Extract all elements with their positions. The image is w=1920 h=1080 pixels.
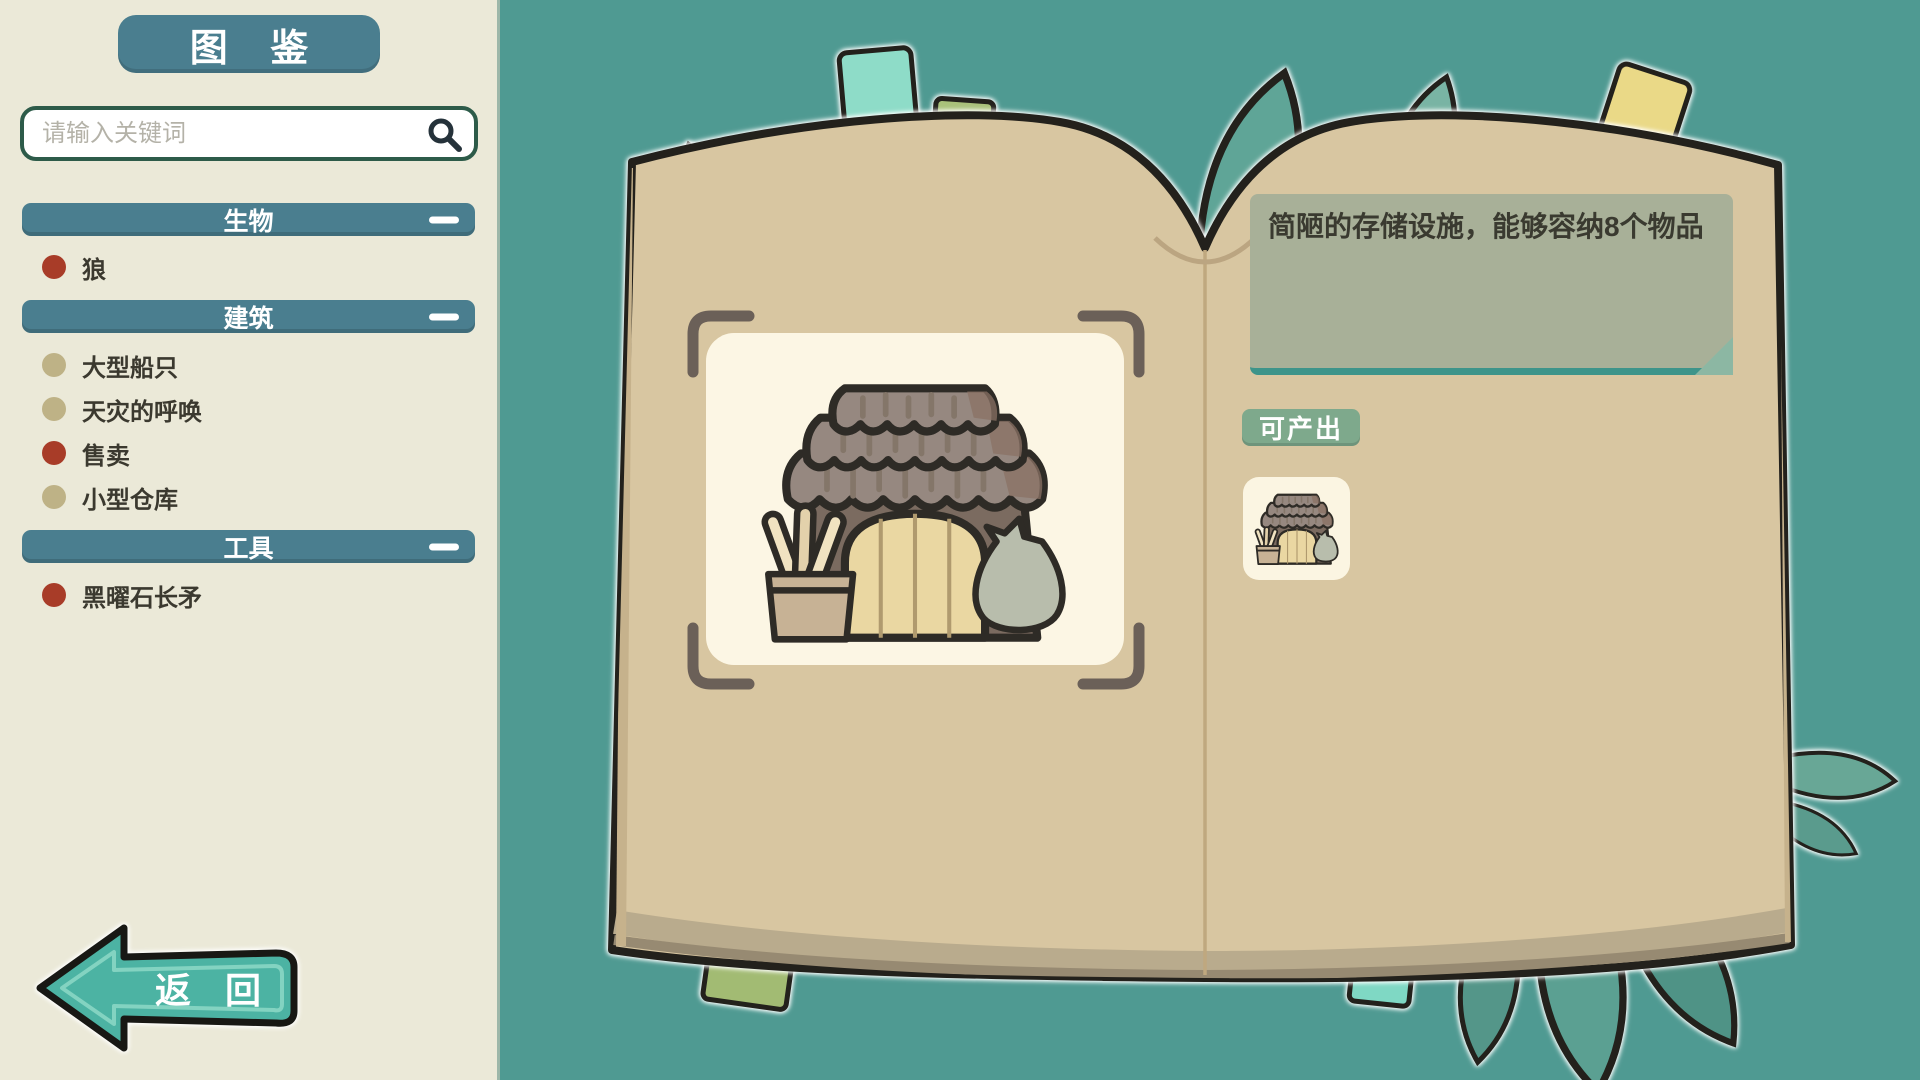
sidebar-item-disaster-call[interactable]: 天灾的呼唤: [42, 394, 202, 424]
category-label: 建筑: [223, 299, 273, 335]
category-header-creatures[interactable]: 生物: [22, 203, 475, 236]
item-display-panel: [693, 316, 1139, 684]
search-box: [20, 106, 478, 161]
category-label: 生物: [223, 202, 273, 238]
item-label: 狼: [82, 250, 106, 285]
sidebar-item-large-ship[interactable]: 大型船只: [42, 350, 178, 380]
category-label: 工具: [223, 529, 273, 565]
collapse-minus-icon[interactable]: [429, 216, 459, 223]
sidebar-item-wolf[interactable]: 狼: [42, 252, 106, 282]
sidebar: 图 鉴 生物 狼 建筑 大型船只 天灾的呼唤: [0, 0, 500, 1080]
item-label: 天灾的呼唤: [82, 392, 202, 427]
bullet-icon: [42, 583, 66, 607]
produces-tag: 可产出: [1242, 409, 1360, 446]
sidebar-item-small-warehouse[interactable]: 小型仓库: [42, 482, 178, 512]
search-icon[interactable]: [426, 116, 462, 152]
sidebar-item-sell[interactable]: 售卖: [42, 438, 130, 468]
bullet-icon: [42, 397, 66, 421]
small-warehouse-icon: [1252, 490, 1342, 567]
bullet-icon: [42, 255, 66, 279]
encyclopedia-screen: 图 鉴 生物 狼 建筑 大型船只 天灾的呼唤: [0, 0, 1920, 1080]
back-button-label: 返 回: [123, 922, 293, 1054]
bullet-icon: [42, 353, 66, 377]
produced-item-card[interactable]: [1243, 477, 1350, 580]
sidebar-item-obsidian-spear[interactable]: 黑曜石长矛: [42, 580, 202, 610]
item-description-box: 简陋的存储设施，能够容纳8个物品: [1250, 194, 1733, 375]
item-description-text: 简陋的存储设施，能够容纳8个物品: [1268, 211, 1704, 242]
page-title: 图 鉴: [118, 15, 380, 73]
collapse-minus-icon[interactable]: [429, 543, 459, 550]
item-label: 黑曜石长矛: [82, 578, 202, 613]
bullet-icon: [42, 441, 66, 465]
open-book-illustration: [500, 0, 1920, 1080]
back-button[interactable]: 返 回: [28, 922, 313, 1060]
search-input[interactable]: [40, 119, 426, 149]
collapse-minus-icon[interactable]: [429, 313, 459, 320]
bullet-icon: [42, 485, 66, 509]
category-header-buildings[interactable]: 建筑: [22, 300, 475, 333]
item-label: 大型船只: [82, 348, 178, 383]
item-label: 小型仓库: [82, 480, 178, 515]
item-label: 售卖: [82, 436, 130, 471]
category-header-tools[interactable]: 工具: [22, 530, 475, 563]
page-fold-corner: [1695, 337, 1733, 375]
